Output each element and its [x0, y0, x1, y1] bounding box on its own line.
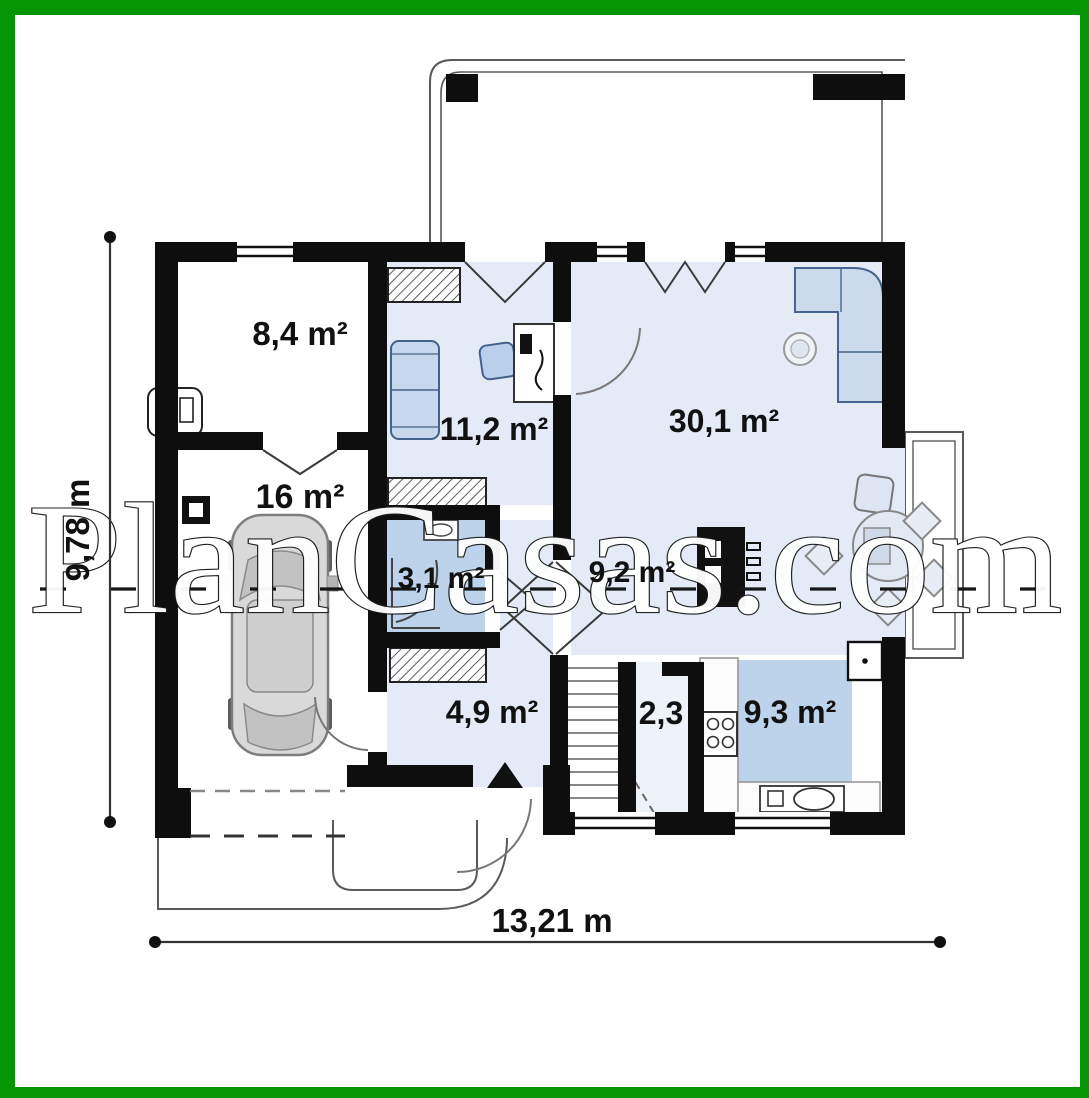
border-left: [0, 0, 15, 1098]
room-label-bedroom: 11,2 m²: [440, 411, 549, 447]
border-bottom: [0, 1087, 1089, 1098]
window: [735, 242, 765, 262]
room-label-corridor: 2,3: [639, 695, 683, 731]
plant-icon: [784, 333, 816, 365]
room-label-storage: 8,4 m²: [252, 315, 347, 352]
border-right: [1080, 0, 1089, 1098]
sofa-icon: [391, 341, 439, 439]
corridor-floor: [636, 662, 688, 812]
room-label-kitchen: 9,3 m²: [744, 694, 836, 730]
terrace-wall-stub: [446, 74, 478, 102]
fridge-icon: [848, 642, 882, 680]
window: [575, 812, 655, 835]
room-label-bathroom: 3,1 m²: [398, 562, 485, 595]
desk-chair-icon: [479, 342, 517, 380]
floor-plan-page: PlanCasas.com 8,4 m² 16 m² 11,2 m² 30,1 …: [0, 0, 1089, 1098]
window: [735, 812, 830, 835]
height-dimension-label: 9,78 m: [59, 479, 96, 582]
wardrobe-icon: [390, 648, 486, 682]
watermark-text: PlanCasas.com: [28, 472, 1063, 647]
window: [237, 242, 293, 262]
border-top: [0, 0, 1089, 15]
floor-plan-drawing: PlanCasas.com 8,4 m² 16 m² 11,2 m² 30,1 …: [0, 0, 1089, 1098]
hob-icon: [703, 712, 737, 756]
kitchen-sink-icon: [760, 786, 844, 812]
wardrobe-icon: [388, 268, 460, 302]
room-label-hall: 4,9 m²: [446, 694, 538, 730]
room-label-garage: 16 m²: [256, 478, 345, 516]
room-label-dining: 9,2 m²: [589, 556, 676, 589]
terrace-wall-stub: [813, 74, 905, 100]
window: [597, 242, 627, 262]
width-dimension-label: 13,21 m: [491, 902, 612, 939]
desk-icon: [514, 324, 554, 402]
room-label-living: 30,1 m²: [669, 403, 779, 439]
